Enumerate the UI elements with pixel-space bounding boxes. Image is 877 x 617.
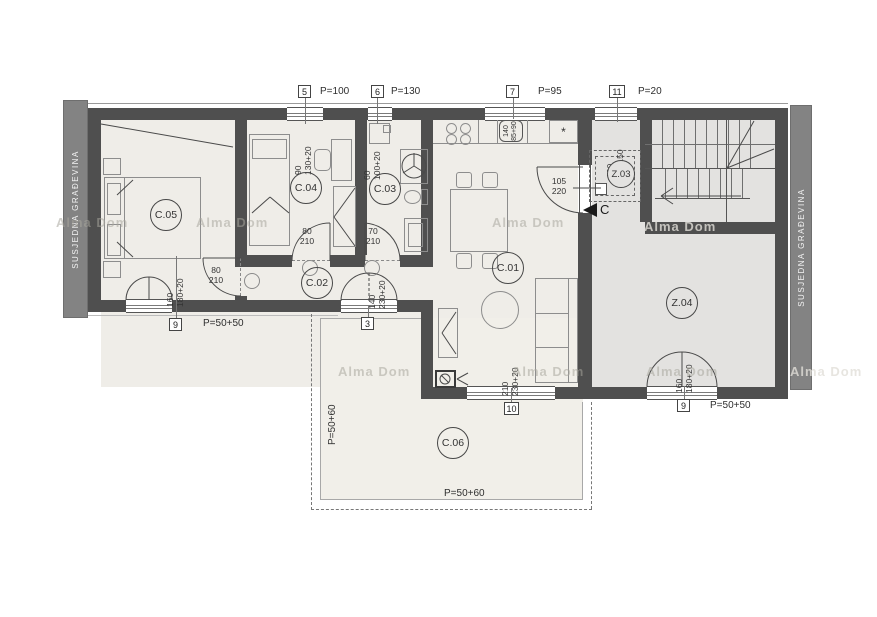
dim-width: 90 xyxy=(293,119,303,175)
parapet-label-6: P=130 xyxy=(391,86,420,97)
watermark: Alma Dom xyxy=(492,215,564,230)
room-label-c06: C.06 xyxy=(437,427,469,459)
stairs-line xyxy=(726,120,727,222)
tag-leader xyxy=(377,98,378,124)
sofa-cushion-line xyxy=(535,313,568,314)
terrace-dim-left: P=50+60 xyxy=(328,393,338,445)
floor-plan: SUSJEDNA GRAĐEVINA SUSJEDNA GRAĐEVINA xyxy=(0,0,877,617)
dim-height: 180+20 xyxy=(175,251,185,307)
dim-height: 85+90 xyxy=(511,121,519,141)
dim-door-c05: 80210 xyxy=(203,265,229,285)
window-7 xyxy=(485,107,545,121)
opening-tag-7: 7 xyxy=(506,85,519,98)
nightstand xyxy=(103,158,121,175)
chair xyxy=(482,172,498,188)
parapet-label-5: P=100 xyxy=(320,86,349,97)
stairs-line xyxy=(645,144,775,145)
wall xyxy=(172,300,341,312)
dim-door-c04: 80210 xyxy=(294,226,320,246)
opening-tag-3: 3 xyxy=(361,317,374,330)
site-line-top xyxy=(88,103,788,104)
door-opening-dash xyxy=(240,258,242,296)
tag-leader xyxy=(513,98,514,119)
terrace-edge xyxy=(320,318,429,319)
dim-height: 210 xyxy=(203,275,229,285)
dim-width: 80 xyxy=(294,226,320,236)
dim-width: 140 xyxy=(367,253,377,309)
watermark: Alma Dom xyxy=(646,364,718,379)
opening-tag-10: 10 xyxy=(504,402,519,415)
tag-number: 3 xyxy=(365,319,370,329)
wall xyxy=(235,296,247,306)
terrace-dashed-boundary xyxy=(311,314,313,510)
room-label-c05: C.05 xyxy=(150,199,182,231)
wall xyxy=(235,255,292,267)
dim-height: 130+20 xyxy=(303,119,313,175)
watermark: Alma Dom xyxy=(338,364,410,379)
stove-burner-icon xyxy=(460,134,471,145)
nightstand xyxy=(103,261,121,278)
wall xyxy=(235,120,247,258)
parapet-label-11: P=20 xyxy=(638,86,662,97)
chair xyxy=(456,253,472,269)
washing-machine-detail xyxy=(383,125,391,133)
kitchen-appliance-box: * xyxy=(549,120,578,143)
round-table xyxy=(481,291,519,329)
appliance-mark: * xyxy=(561,125,566,139)
toilet-bowl xyxy=(404,190,421,204)
room-label-c04: C.04 xyxy=(290,172,322,204)
wall xyxy=(421,387,467,399)
tag-leader xyxy=(617,98,618,122)
kitchen-counter-divider xyxy=(497,120,498,143)
entrance-door-11 xyxy=(595,107,637,121)
dim-width: 60 xyxy=(362,124,372,180)
wall xyxy=(400,255,433,267)
dim-door-3: 140230+20 xyxy=(367,253,387,309)
wall xyxy=(717,387,788,399)
tag-number: 9 xyxy=(173,320,178,330)
wall xyxy=(392,108,485,120)
vanity-inner xyxy=(408,223,423,247)
neighbor-strip-left-label: SUSJEDNA GRAĐEVINA xyxy=(71,150,80,269)
wall xyxy=(545,108,595,120)
tag-number: 10 xyxy=(506,404,516,414)
dim-width: 80 xyxy=(203,265,229,275)
room-label-z04: Z.04 xyxy=(666,287,698,319)
parapet-label-9-right: P=50+50 xyxy=(710,400,751,411)
stairs-line xyxy=(655,198,750,199)
opening-tag-9-left: 9 xyxy=(169,318,182,331)
stairs-lower-flight xyxy=(655,168,747,198)
tag-number: 6 xyxy=(375,87,380,97)
stove-burner-icon xyxy=(460,123,471,134)
watermark: Alma Dom xyxy=(196,215,268,230)
neighbor-strip-right: SUSJEDNA GRAĐEVINA xyxy=(790,105,812,390)
wardrobe xyxy=(333,186,356,247)
opening-tag-11: 11 xyxy=(609,85,625,98)
dim-window-6: 60100+20 xyxy=(362,124,382,180)
watermark: Alma Dom xyxy=(512,364,584,379)
watermark: Alma Dom xyxy=(56,215,128,230)
opening-tag-6: 6 xyxy=(371,85,384,98)
window-6 xyxy=(368,107,392,121)
kitchen-counter-divider xyxy=(527,120,528,143)
wall xyxy=(323,108,368,120)
parapet-label-9-left: P=50+50 xyxy=(203,318,244,329)
neighbor-strip-left: SUSJEDNA GRAĐEVINA xyxy=(63,100,88,318)
terrace-edge xyxy=(320,499,583,500)
toilet-tank xyxy=(421,189,428,205)
dim-height: 230+20 xyxy=(377,253,387,309)
desk-chair xyxy=(314,149,331,171)
section-marker-letter: C xyxy=(600,202,609,217)
tag-number: 11 xyxy=(612,87,621,97)
desk xyxy=(331,139,352,181)
terrace-dashed-boundary xyxy=(311,509,592,511)
dim-width: 140 xyxy=(503,121,511,141)
tv-stand xyxy=(438,308,458,358)
pillow xyxy=(107,183,121,215)
dim-door-c03: 70210 xyxy=(360,226,386,246)
stove-burner-icon xyxy=(446,134,457,145)
wall xyxy=(637,108,788,120)
kitchen-counter-divider xyxy=(478,120,479,143)
door-swing-circle xyxy=(244,273,260,289)
room-label-c02: C.02 xyxy=(301,267,333,299)
boiler-fixture xyxy=(435,370,456,388)
terrace-edge xyxy=(582,402,583,500)
opening-tag-5: 5 xyxy=(298,85,311,98)
shower xyxy=(400,149,428,184)
parapet-label-7: P=95 xyxy=(538,86,562,97)
tag-number: 7 xyxy=(510,87,515,97)
room-label-z03: Z.03 xyxy=(607,160,635,188)
wall xyxy=(330,255,365,267)
dim-door-entry: 105220 xyxy=(544,176,574,196)
wall xyxy=(88,108,287,120)
site-line-bottom-left xyxy=(88,315,338,316)
terrace-dashed-boundary xyxy=(591,402,593,509)
tag-number: 5 xyxy=(302,87,307,97)
stairs-line xyxy=(645,168,775,169)
dim-window-5: 90130+20 xyxy=(293,119,313,175)
dim-width: 160 xyxy=(165,251,175,307)
chair xyxy=(456,172,472,188)
porch-fixture xyxy=(595,183,607,195)
dim-width: 105 xyxy=(544,176,574,186)
room-label-c03: C.03 xyxy=(369,173,401,205)
dim-height: 210 xyxy=(294,236,320,246)
wall xyxy=(640,120,652,222)
opening-tag-9-right: 9 xyxy=(677,399,690,412)
terrace-edge xyxy=(320,318,321,500)
dim-window-9-left: 160180+20 xyxy=(165,251,185,307)
wall xyxy=(421,301,433,387)
wall xyxy=(775,120,788,399)
room-label-c01: C.01 xyxy=(492,252,524,284)
dim-height: 220 xyxy=(544,186,574,196)
dim-width: 70 xyxy=(360,226,386,236)
pillow xyxy=(252,139,287,159)
terrace-dim-bottom: P=50+60 xyxy=(444,488,485,499)
wall xyxy=(88,300,126,312)
watermark: Alma Dom xyxy=(790,364,862,379)
watermark: Alma Dom xyxy=(644,219,716,234)
dim-height: 210 xyxy=(360,236,386,246)
tag-number: 9 xyxy=(681,401,686,411)
stove-burner-icon xyxy=(446,123,457,134)
dim-window-7: 14085+90 xyxy=(499,120,523,142)
dim-width: 210 xyxy=(500,340,510,396)
dim-height: 100+20 xyxy=(372,124,382,180)
sofa-cushion-line xyxy=(535,347,568,348)
neighbor-strip-right-label: SUSJEDNA GRAĐEVINA xyxy=(797,188,806,307)
